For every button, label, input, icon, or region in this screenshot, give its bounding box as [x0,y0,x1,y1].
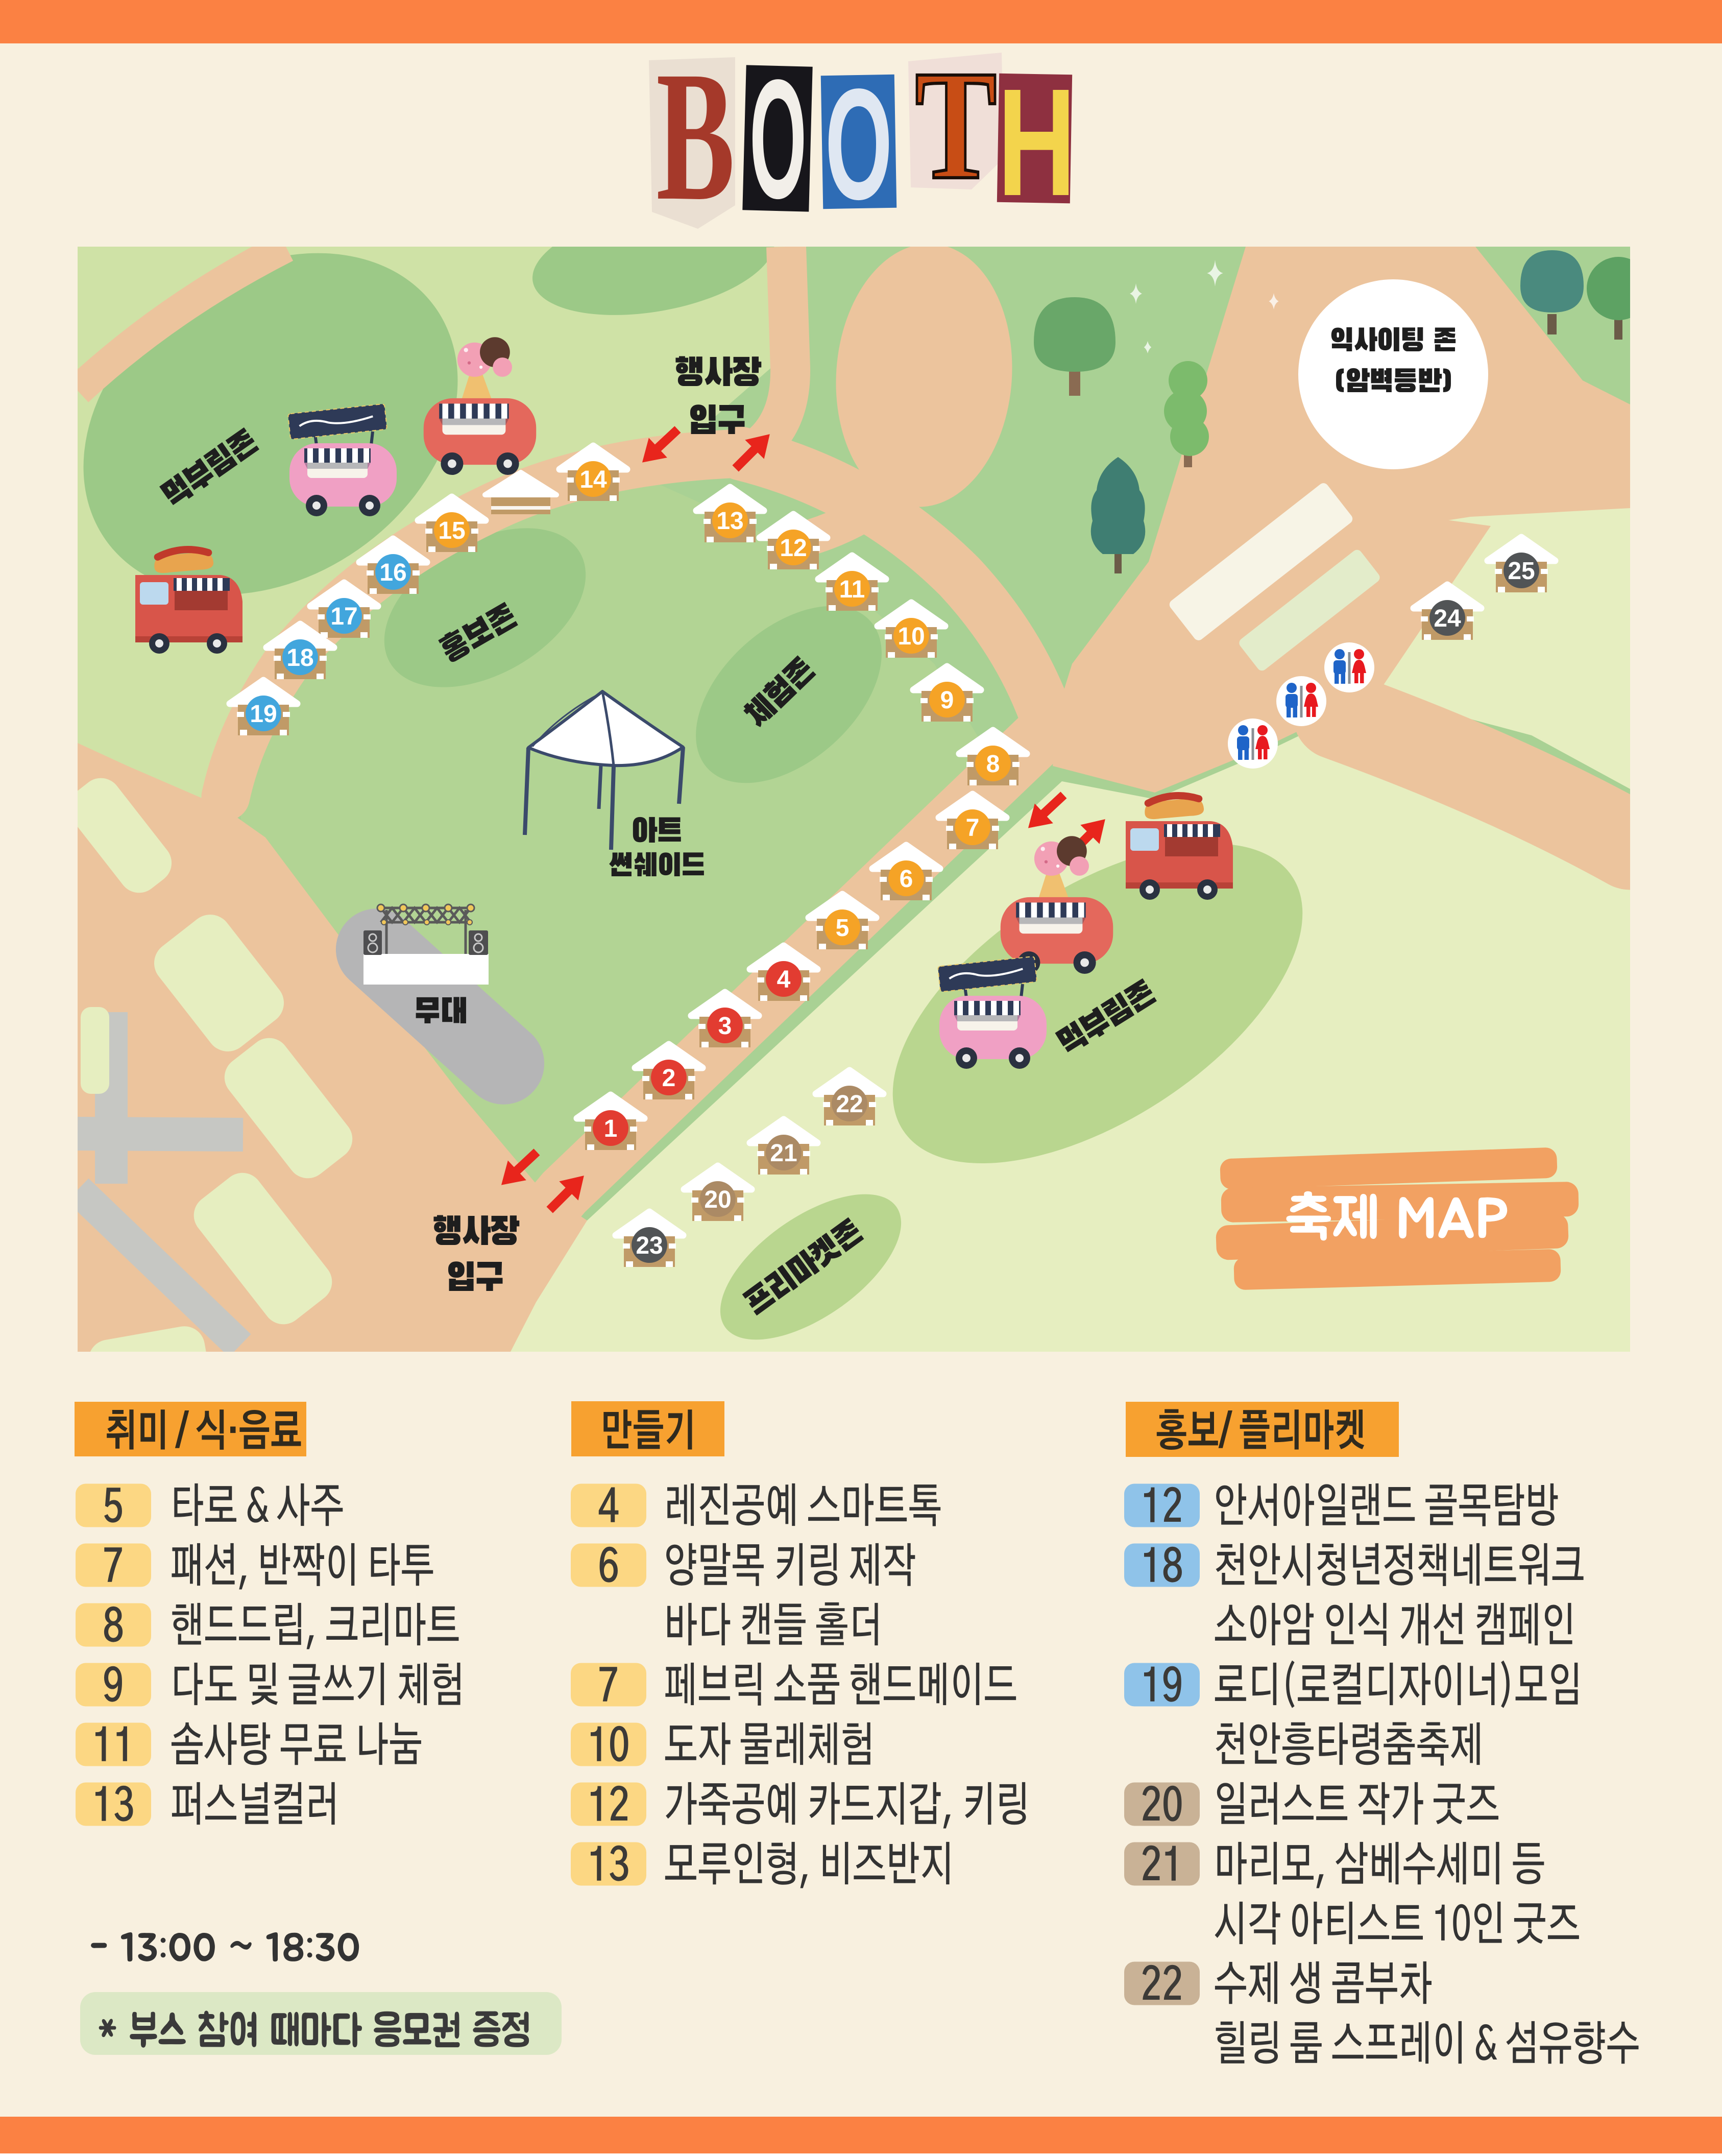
svg-text:8: 8 [986,751,1000,778]
svg-text:12: 12 [780,535,807,562]
svg-text:23: 23 [636,1232,663,1259]
svg-text:18: 18 [286,644,313,672]
svg-text:19: 19 [250,701,277,728]
svg-text:20: 20 [704,1186,731,1213]
svg-text:10: 10 [898,623,925,650]
svg-text:17: 17 [330,603,357,630]
svg-text:4: 4 [777,966,791,993]
svg-text:2: 2 [662,1065,676,1092]
svg-text:1: 1 [604,1115,618,1142]
svg-text:6: 6 [900,866,913,893]
svg-text:14: 14 [579,466,607,493]
svg-text:13: 13 [716,508,743,535]
svg-text:11: 11 [839,576,865,603]
svg-text:21: 21 [770,1140,797,1167]
svg-text:15: 15 [438,517,465,544]
svg-text:25: 25 [1508,558,1535,585]
svg-text:3: 3 [718,1013,732,1040]
svg-text:7: 7 [966,815,980,842]
svg-text:24: 24 [1434,605,1461,632]
svg-text:16: 16 [379,559,406,586]
svg-text:5: 5 [836,915,850,942]
svg-text:22: 22 [836,1091,863,1118]
svg-text:9: 9 [940,687,954,714]
